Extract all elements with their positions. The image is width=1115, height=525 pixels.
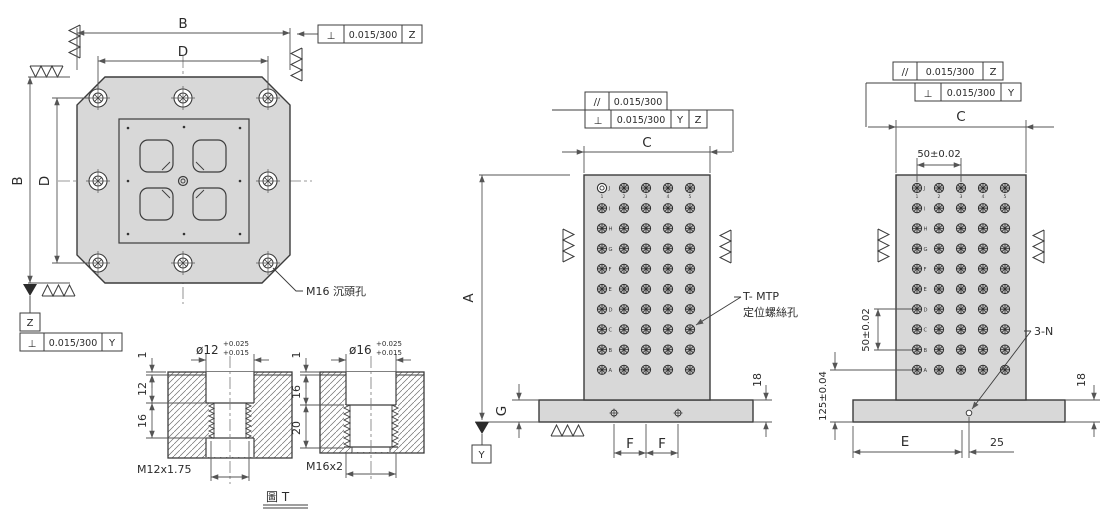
col-label: 5	[1004, 194, 1007, 200]
grid-hole	[1000, 325, 1009, 334]
dim-18: 18	[1075, 373, 1088, 387]
dim-col-pitch: 50±0.02	[917, 149, 960, 160]
m16-tol-lower: +0.015	[376, 349, 402, 357]
engineering-drawing-page: B D B D Z ⊥ 0.015/300 Y	[0, 0, 1115, 525]
dim-b-top: B	[178, 16, 187, 32]
grid-hole	[956, 224, 965, 233]
top-view: B D B D Z ⊥ 0.015/300 Y	[10, 16, 422, 351]
datum-y: Y	[472, 422, 491, 463]
row-label: F	[924, 267, 927, 273]
grid-hole	[912, 365, 921, 374]
grid-hole	[912, 325, 921, 334]
grid-hole	[597, 224, 606, 233]
front-fcf-parallel: // 0.015/300	[585, 92, 667, 110]
fcf-datum: Z	[409, 30, 416, 41]
fcf-datum-z: Z	[990, 67, 997, 78]
m16-diameter: ø16	[349, 343, 372, 357]
row-label: B	[924, 348, 928, 354]
side-fcf-perpendicular: ⊥ 0.015/300 Y	[866, 83, 1021, 127]
col-label: 1	[601, 194, 604, 200]
row-label: H	[924, 227, 928, 233]
finish-mark-left	[878, 229, 889, 262]
grid-hole	[912, 204, 921, 213]
finish-mark-base	[551, 425, 584, 436]
grid-hole	[1000, 264, 1009, 273]
grid-hole	[956, 365, 965, 374]
grid-hole	[619, 284, 628, 293]
grid-hole	[619, 224, 628, 233]
fcf-tolerance: 0.015/300	[617, 115, 666, 126]
row-label: G	[609, 247, 613, 253]
row-label: E	[609, 287, 612, 293]
fcf-datum-z: Z	[695, 115, 702, 126]
grid-hole	[934, 284, 943, 293]
grid-hole	[685, 264, 694, 273]
grid-hole	[956, 305, 965, 314]
grid-hole	[978, 305, 987, 314]
mtp-note-line1: T- MTP	[742, 290, 779, 303]
fcf-perp-symbol: ⊥	[924, 89, 933, 100]
col-label: 4	[667, 194, 670, 200]
grid-hole	[685, 365, 694, 374]
grid-hole	[597, 244, 606, 253]
grid-hole	[641, 183, 650, 192]
row-label: D	[609, 307, 613, 313]
grid-hole	[978, 284, 987, 293]
fcf-datum: Y	[108, 338, 116, 349]
grid-hole	[619, 305, 628, 314]
grid-hole	[641, 284, 650, 293]
grid-hole	[956, 284, 965, 293]
grid-hole	[1000, 305, 1009, 314]
grid-hole	[912, 284, 921, 293]
grid-hole	[619, 183, 628, 192]
m16-dim-thread-depth: 20	[290, 421, 303, 435]
grid-hole	[597, 345, 606, 354]
grid-hole	[956, 264, 965, 273]
grid-hole	[663, 244, 672, 253]
side-view: JIHGFEDCBA12345 // 0.015/300 Z ⊥ 0.015/3…	[818, 62, 1100, 458]
dim-125: 125±0.04	[818, 371, 829, 421]
fcf-parallel-symbol: //	[594, 97, 601, 108]
figure-label: 圖 T	[263, 490, 308, 508]
grid-hole	[641, 244, 650, 253]
m12-diameter: ø12	[196, 343, 219, 357]
fcf-datum-y: Y	[676, 115, 684, 126]
m16-tol-upper: +0.025	[376, 340, 402, 348]
counterbore-note-text: M16 沉頭孔	[306, 285, 366, 298]
dim-row-pitch: 50±0.02	[861, 308, 872, 351]
grid-hole	[934, 365, 943, 374]
dim-f-left: F	[626, 436, 634, 452]
datum-y-label: Y	[477, 450, 485, 461]
grid-hole	[1000, 345, 1009, 354]
m12-tol-upper: +0.025	[223, 340, 249, 348]
grid-hole	[663, 305, 672, 314]
grid-hole	[934, 345, 943, 354]
grid-hole	[663, 284, 672, 293]
grid-hole	[956, 244, 965, 253]
dim-25: 25	[990, 436, 1004, 449]
grid-hole	[934, 204, 943, 213]
detail-section-m16: ø16 +0.025 +0.015 1 16 20 M16x2	[290, 340, 424, 480]
grid-hole	[663, 183, 672, 192]
dim-e: E	[901, 434, 910, 450]
m12-dim-bore-depth: 12	[136, 382, 149, 396]
grid-hole	[956, 345, 965, 354]
finish-mark-right-edge	[291, 48, 302, 81]
finish-mark-right	[1033, 230, 1044, 263]
grid-hole	[912, 345, 921, 354]
m16-dim-land: 1	[290, 352, 303, 359]
grid-hole	[619, 204, 628, 213]
grid-hole	[1000, 204, 1009, 213]
fcf-perp-symbol: ⊥	[594, 116, 603, 127]
grid-hole	[912, 183, 921, 192]
dim-g: G	[494, 406, 510, 416]
fcf-perp-symbol: ⊥	[327, 31, 336, 42]
side-base-flange	[853, 400, 1065, 422]
row-label: G	[924, 247, 928, 253]
col-label: 5	[689, 194, 692, 200]
engineering-drawing-canvas: B D B D Z ⊥ 0.015/300 Y	[0, 0, 1115, 525]
grid-hole	[685, 204, 694, 213]
grid-hole	[663, 264, 672, 273]
grid-hole	[956, 204, 965, 213]
grid-hole	[978, 204, 987, 213]
grid-hole	[978, 244, 987, 253]
hole-note-text: 3-N	[1034, 325, 1053, 338]
dim-18: 18	[751, 373, 764, 387]
fcf-top-right: ⊥ 0.015/300 Z	[297, 25, 422, 43]
front-view: JIHGFEDCBA12345 // 0.015/300 ⊥ 0.015/300…	[461, 92, 798, 463]
finish-mark-top	[30, 66, 63, 77]
grid-hole	[597, 284, 606, 293]
grid-hole	[934, 183, 943, 192]
grid-hole	[619, 244, 628, 253]
grid-hole	[685, 345, 694, 354]
m16-dim-bore-depth: 16	[290, 385, 303, 399]
grid-hole	[597, 365, 606, 374]
grid-hole	[978, 325, 987, 334]
grid-hole	[685, 244, 694, 253]
row-label: E	[924, 287, 927, 293]
side-base-hole	[966, 410, 972, 416]
grid-hole	[663, 224, 672, 233]
row-label: D	[924, 307, 928, 313]
grid-hole	[1000, 244, 1009, 253]
grid-hole	[685, 284, 694, 293]
grid-hole	[597, 264, 606, 273]
grid-hole	[978, 345, 987, 354]
datum-z-label: Z	[27, 318, 34, 329]
front-j1-ring-hole	[597, 183, 606, 192]
grid-hole	[934, 325, 943, 334]
m12-dim-thread-depth: 16	[136, 414, 149, 428]
dim-c: C	[642, 135, 651, 151]
detail-section-m12: ø12 +0.025 +0.015 1 12 16 M12x1.75	[136, 340, 292, 484]
grid-hole	[597, 325, 606, 334]
front-base-flange	[539, 400, 753, 422]
grid-hole	[597, 305, 606, 314]
fcf-tolerance: 0.015/300	[926, 67, 975, 78]
col-label: 1	[916, 194, 919, 200]
dim-a: A	[461, 293, 477, 303]
fcf-tolerance: 0.015/300	[614, 97, 663, 108]
finish-mark-left	[563, 229, 574, 262]
row-label: H	[609, 227, 613, 233]
finish-mark-right	[720, 230, 731, 263]
grid-hole	[934, 224, 943, 233]
side-fcf-parallel: // 0.015/300 Z	[893, 62, 1003, 80]
grid-hole	[685, 183, 694, 192]
grid-hole	[956, 183, 965, 192]
grid-hole	[912, 224, 921, 233]
grid-hole	[934, 244, 943, 253]
grid-hole	[641, 224, 650, 233]
grid-hole	[641, 365, 650, 374]
row-label: F	[609, 267, 612, 273]
grid-hole	[641, 204, 650, 213]
grid-hole	[641, 264, 650, 273]
col-label: 3	[645, 194, 648, 200]
row-label: A	[924, 368, 928, 374]
grid-hole	[619, 264, 628, 273]
grid-hole	[685, 305, 694, 314]
grid-hole	[978, 264, 987, 273]
grid-hole	[912, 244, 921, 253]
finish-mark-bottom	[42, 285, 75, 296]
fcf-perp-symbol: ⊥	[28, 339, 37, 350]
grid-hole	[912, 264, 921, 273]
grid-hole	[663, 204, 672, 213]
m16-thread-spec: M16x2	[306, 460, 343, 473]
col-label: 2	[623, 194, 626, 200]
grid-hole	[978, 183, 987, 192]
m12-dim-land: 1	[136, 352, 149, 359]
grid-hole	[641, 305, 650, 314]
grid-hole	[978, 365, 987, 374]
grid-hole	[1000, 224, 1009, 233]
fcf-tolerance: 0.015/300	[349, 30, 398, 41]
fcf-parallel-symbol: //	[902, 67, 909, 78]
m12-thread-spec: M12x1.75	[137, 463, 192, 476]
mtp-note: T- MTP 定位螺絲孔	[696, 290, 798, 325]
col-label: 2	[938, 194, 941, 200]
grid-hole	[663, 345, 672, 354]
figure-label-text: 圖 T	[266, 490, 290, 504]
grid-hole	[619, 325, 628, 334]
dim-d-top: D	[178, 44, 188, 60]
fcf-tolerance: 0.015/300	[947, 88, 996, 99]
row-label: B	[609, 348, 613, 354]
datum-z: Z	[20, 284, 40, 331]
row-label: C	[609, 328, 613, 334]
grid-hole	[619, 345, 628, 354]
grid-hole	[1000, 183, 1009, 192]
grid-hole	[685, 325, 694, 334]
finish-mark-left-edge	[69, 25, 80, 58]
base-plate-outline	[77, 77, 290, 283]
dim-f-right: F	[658, 436, 666, 452]
grid-hole	[934, 264, 943, 273]
dim-d-left: D	[37, 176, 53, 186]
grid-hole	[1000, 284, 1009, 293]
row-label: A	[609, 368, 613, 374]
grid-hole	[912, 305, 921, 314]
fcf-datum-y: Y	[1007, 88, 1015, 99]
m12-tol-lower: +0.015	[223, 349, 249, 357]
grid-hole	[663, 365, 672, 374]
grid-hole	[978, 224, 987, 233]
fcf-bottom-left: ⊥ 0.015/300 Y	[20, 333, 122, 351]
grid-hole	[663, 325, 672, 334]
dim-b-left: B	[10, 176, 26, 185]
fcf-tolerance: 0.015/300	[49, 338, 98, 349]
grid-hole	[956, 325, 965, 334]
col-label: 4	[982, 194, 985, 200]
col-label: 3	[960, 194, 963, 200]
grid-hole	[641, 325, 650, 334]
counterbore-note: M16 沉頭孔	[273, 268, 366, 298]
grid-hole	[934, 305, 943, 314]
grid-hole	[641, 345, 650, 354]
row-label: C	[924, 328, 928, 334]
grid-hole	[685, 224, 694, 233]
mtp-note-line2: 定位螺絲孔	[743, 305, 798, 319]
grid-hole	[597, 204, 606, 213]
dim-c: C	[956, 109, 965, 125]
grid-hole	[619, 365, 628, 374]
